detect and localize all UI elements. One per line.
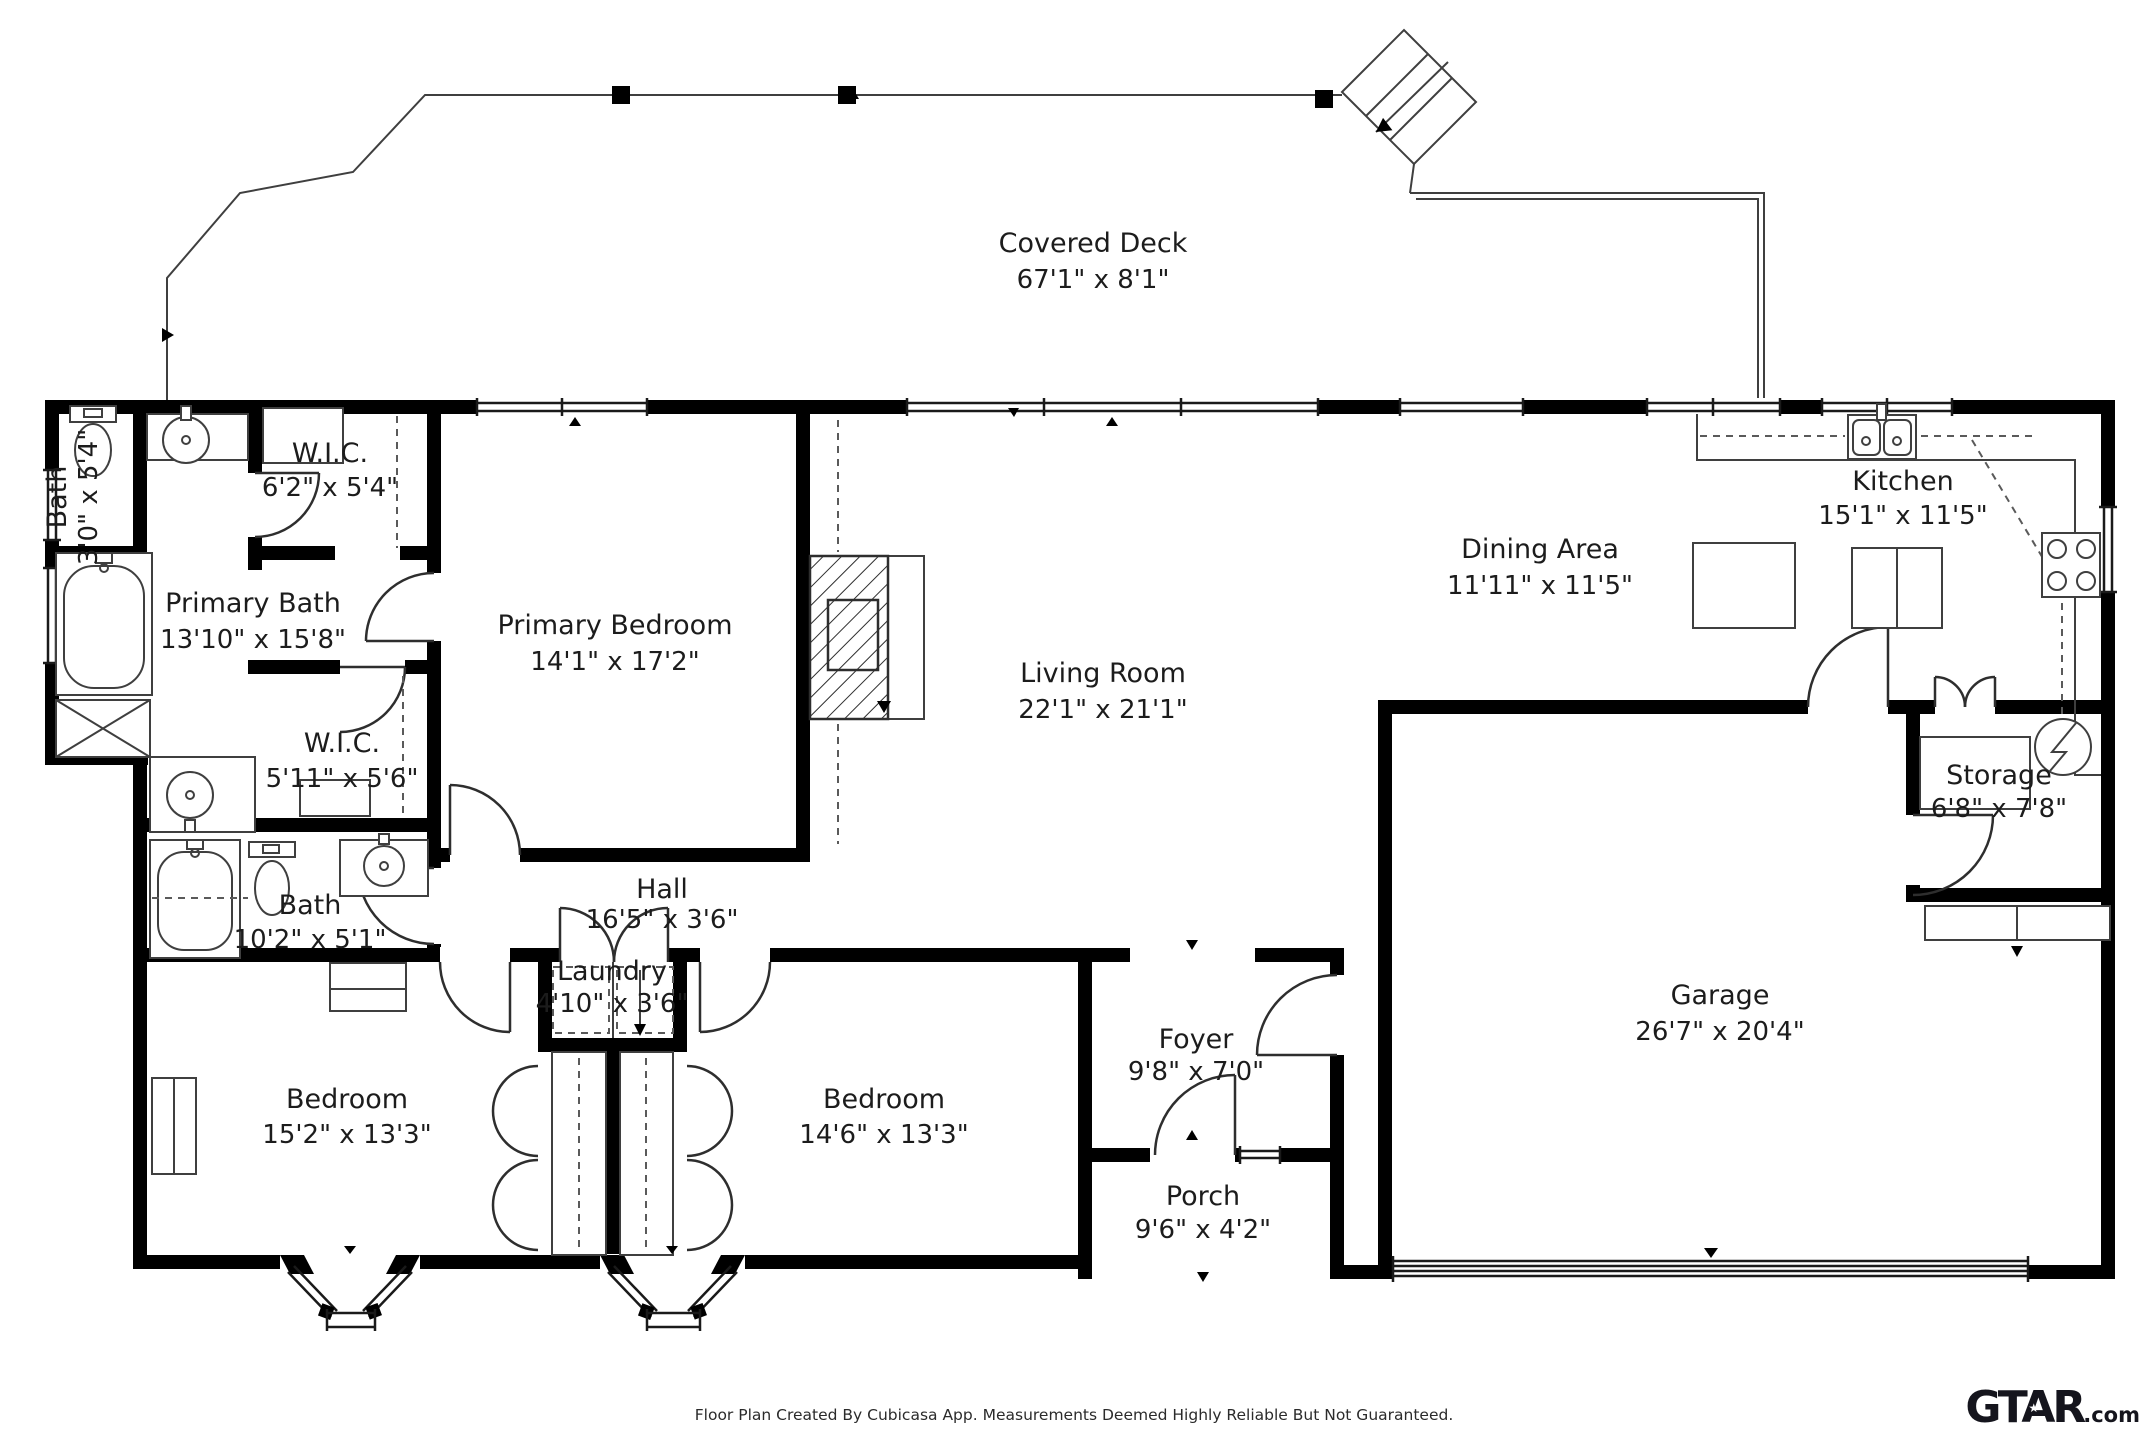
bathtub-icon: [56, 553, 152, 695]
room-label-bath-small: Bath: [42, 466, 73, 529]
vanity-sink-icon: [150, 757, 255, 832]
covered-deck-outline: [162, 30, 1764, 400]
window: [1400, 398, 1523, 416]
stairs-icon: [1342, 30, 1476, 164]
room-label-foyer: Foyer: [1159, 1024, 1235, 1055]
room-label-primary-bath: Primary Bath: [165, 588, 341, 619]
door-storage: [1913, 815, 1993, 895]
garage-door-icon: [1393, 1248, 2028, 1282]
room-label-primary-bedroom: Primary Bedroom: [497, 610, 732, 641]
room-label-bedroom2: Bedroom: [823, 1084, 945, 1115]
fireplace-icon: [810, 420, 924, 844]
room-dims-bedroom1: 15'2" x 13'3": [262, 1120, 431, 1150]
room-label-storage: Storage: [1946, 760, 2052, 791]
disclaimer-text: Floor Plan Created By Cubicasa App. Meas…: [695, 1406, 1454, 1424]
room-label-living-room: Living Room: [1020, 658, 1186, 689]
shower-icon: [56, 700, 150, 757]
room-dims-laundry: 4'10" x 3'6": [536, 989, 689, 1019]
room-label-wic1: W.I.C.: [292, 438, 368, 469]
gtar-logo-text: GTAR: [1965, 1386, 2083, 1430]
room-dims-bedroom2: 14'6" x 13'3": [799, 1120, 968, 1150]
refrigerator-icon: [1852, 548, 1942, 628]
room-label-porch: Porch: [1166, 1181, 1240, 1212]
deck-post: [612, 86, 630, 104]
room-dims-living-room: 22'1" x 21'1": [1018, 695, 1187, 725]
door-bedroom2: [700, 962, 770, 1032]
floor-plan-drawing: Covered Deck 67'1" x 8'1" Bath 3'0" x 5'…: [0, 0, 2148, 1432]
door-primary-bath: [366, 573, 434, 641]
vanity-sink-icon: [340, 834, 428, 896]
window: [477, 398, 647, 416]
room-dims-covered-deck: 67'1" x 8'1": [1017, 265, 1170, 295]
room-label-garage: Garage: [1671, 980, 1770, 1011]
kitchen-island-icon: [1693, 543, 1795, 628]
room-dims-primary-bath: 13'10" x 15'8": [160, 625, 346, 655]
room-dims-foyer: 9'8" x 7'0": [1128, 1057, 1264, 1087]
door-garage-entry: [1257, 975, 1337, 1055]
room-dims-wic1: 6'2" x 5'4": [262, 473, 398, 503]
room-dims-bath-small: 3'0" x 5'4": [74, 429, 104, 565]
room-label-dining-area: Dining Area: [1461, 534, 1619, 565]
gtar-logo-suffix: .com: [2083, 1403, 2140, 1427]
floor-plan: Covered Deck 67'1" x 8'1" Bath 3'0" x 5'…: [0, 0, 2148, 1432]
window: [907, 398, 1318, 416]
room-dims-hall: 16'5" x 3'6": [586, 905, 739, 935]
room-label-kitchen: Kitchen: [1852, 466, 1953, 497]
room-label-wic2: W.I.C.: [304, 728, 380, 759]
room-dims-dining-area: 11'11" x 11'5": [1447, 571, 1633, 601]
room-label-covered-deck: Covered Deck: [999, 228, 1188, 259]
door-bedroom1: [440, 962, 510, 1032]
room-dims-bath2: 10'2" x 5'1": [234, 925, 387, 955]
gtar-logo: GTAR★.com: [1965, 1386, 2140, 1430]
room-dims-storage: 6'8" x 7'8": [1931, 794, 2067, 824]
door-front: [1155, 1075, 1235, 1155]
room-label-bedroom1: Bedroom: [286, 1084, 408, 1115]
room-label-laundry: Laundry: [557, 956, 667, 987]
room-dims-primary-bedroom: 14'1" x 17'2": [530, 647, 699, 677]
room-label-hall: Hall: [636, 874, 688, 905]
room-dims-wic2: 5'11" x 5'6": [266, 764, 419, 794]
door-kitchen-garage: [1808, 627, 1888, 707]
deck-post: [1315, 90, 1333, 108]
gtar-logo-star-icon: ★: [2028, 1402, 2039, 1414]
room-dims-kitchen: 15'1" x 11'5": [1818, 501, 1987, 531]
sidelight-window: [1240, 1146, 1280, 1164]
pedestal-sink-icon: [147, 406, 248, 463]
room-label-bath2: Bath: [279, 890, 342, 921]
window: [1647, 398, 1780, 416]
door-wic2: [340, 667, 405, 732]
door-primary-bedroom: [450, 785, 520, 855]
window: [2099, 507, 2117, 592]
room-dims-porch: 9'6" x 4'2": [1135, 1215, 1271, 1245]
stove-icon: [2042, 533, 2100, 597]
room-dims-garage: 26'7" x 20'4": [1635, 1017, 1804, 1047]
